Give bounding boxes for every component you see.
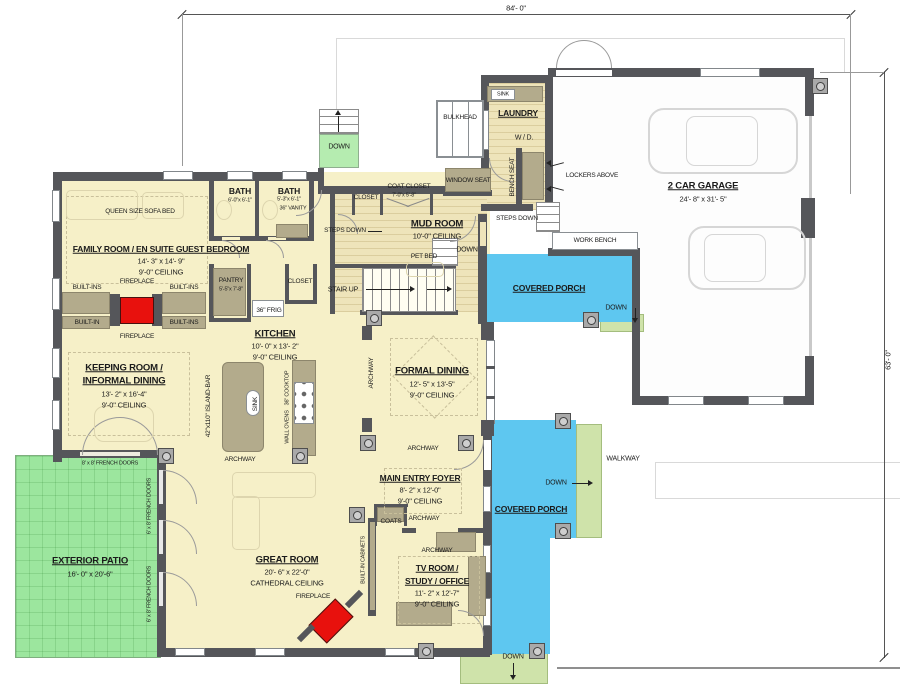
label-tv-ceiling: 9'-0" CEILING xyxy=(415,600,459,608)
window xyxy=(163,171,193,180)
label-keeping1: KEEPING ROOM / xyxy=(85,363,162,373)
porch-post xyxy=(458,435,474,451)
wall xyxy=(255,178,259,240)
label-wd: W / D. xyxy=(515,135,533,142)
label-bath1-size: 6'-0"x 6'-1" xyxy=(228,198,252,204)
archway-column xyxy=(362,326,372,340)
cooktop xyxy=(294,382,314,424)
label-pantry: PANTRY xyxy=(219,278,244,285)
label-kitchen: KITCHEN xyxy=(255,329,296,339)
label-vanity: 36" VANITY xyxy=(279,206,306,212)
label-foyer: MAIN ENTRY FOYER xyxy=(380,474,461,483)
archway-post xyxy=(292,448,308,464)
stair-down-arrow xyxy=(427,289,447,290)
label-fireplace-bottom: FIREPLACE xyxy=(120,334,154,341)
table-outline xyxy=(94,406,154,442)
label-bath1: BATH xyxy=(229,187,251,196)
window xyxy=(282,171,307,180)
stair-arrow-head xyxy=(335,110,341,115)
window-mullion xyxy=(486,396,495,399)
car-cabin xyxy=(686,116,758,166)
window xyxy=(385,648,415,656)
porch-post xyxy=(555,413,571,429)
label-closet-mud: CLOSET xyxy=(354,195,379,202)
label-down-porch-side: DOWN xyxy=(605,305,626,312)
wall xyxy=(209,318,251,322)
dimension-width: 84'- 0" xyxy=(506,4,526,12)
label-covered-porch-front: COVERED PORCH xyxy=(495,505,568,514)
label-keeping-ceiling: 9'-0" CEILING xyxy=(102,401,146,409)
built-ins-cabinet xyxy=(162,292,206,314)
label-window-seat: WINDOW SEAT xyxy=(446,178,491,185)
driveway-line xyxy=(655,462,656,498)
label-built-ins: BUILT-INS xyxy=(170,320,199,327)
window xyxy=(175,648,205,656)
window xyxy=(483,486,491,512)
label-kitchen-ceiling: 9'-0" CEILING xyxy=(253,353,297,361)
lockers-arrow-head xyxy=(546,186,551,192)
garage-rear-door-arc xyxy=(584,40,612,68)
label-tv-size: 11'- 2" x 12'-7" xyxy=(415,589,459,597)
label-work-bench: WORK BENCH xyxy=(574,238,617,245)
label-walkway: WALKWAY xyxy=(606,456,639,463)
basement-stair-landing xyxy=(319,134,359,168)
label-kitchen-size: 10'- 0" x 13'- 2" xyxy=(252,342,299,350)
label-keeping-size: 13'- 2" x 16'-4" xyxy=(101,390,146,398)
garage-door xyxy=(809,238,812,356)
wall xyxy=(285,300,317,304)
porch-post xyxy=(418,643,434,659)
label-great-ceiling: CATHEDRAL CEILING xyxy=(250,579,323,587)
label-tv1: TV ROOM / xyxy=(416,564,459,573)
label-foyer-ceiling: 9'-0" CEILING xyxy=(398,497,442,505)
lockers xyxy=(522,152,544,200)
archway-post xyxy=(349,507,365,523)
label-tv2: STUDY / OFFICE xyxy=(405,577,469,586)
sectional-outline xyxy=(232,472,316,498)
covered-porch-front xyxy=(490,536,550,654)
porch-post xyxy=(360,435,376,451)
label-bench-seat: BENCH SEAT xyxy=(510,157,517,196)
pet-bed-outline xyxy=(406,262,444,277)
label-archway-tv: ARCHWAY xyxy=(421,548,452,555)
label-family-size: 14'- 3" x 14'- 9" xyxy=(138,257,185,265)
wall xyxy=(481,204,533,211)
stair-arrow xyxy=(338,116,339,132)
wall xyxy=(481,420,494,436)
car-cabin xyxy=(704,234,766,282)
label-foyer-size: 8'- 2" x 12'-0" xyxy=(399,486,440,494)
bulkhead-mullion xyxy=(452,100,453,158)
label-down-basement: DOWN xyxy=(328,144,349,151)
label-built-ins: BUILT-INS xyxy=(73,285,102,292)
label-formal-ceiling: 9'-0" CEILING xyxy=(410,391,454,399)
sofa-outline xyxy=(66,190,138,220)
dimension-ext xyxy=(820,72,884,73)
label-built-in: BUILT-IN xyxy=(75,320,100,327)
wall xyxy=(430,188,433,215)
down-arrow-head xyxy=(510,675,516,680)
sectional-outline xyxy=(232,496,260,550)
stair-up-arrow xyxy=(366,289,410,290)
driveway-line xyxy=(557,667,900,669)
label-family-ceiling: 9'-0" CEILING xyxy=(139,268,183,276)
down-arrow xyxy=(635,308,636,318)
window xyxy=(748,396,784,405)
window xyxy=(52,190,60,222)
bulkhead xyxy=(436,100,484,158)
wall xyxy=(209,178,214,240)
porch-post xyxy=(583,312,599,328)
vanity xyxy=(276,224,308,238)
wall xyxy=(632,396,814,405)
fireplace-jamb xyxy=(110,294,120,326)
dimension-ext xyxy=(182,14,183,166)
label-down-bottom: DOWN xyxy=(502,654,523,661)
driveway-line xyxy=(655,462,900,463)
wall xyxy=(313,264,317,304)
wall xyxy=(318,168,324,190)
door-gap xyxy=(480,222,486,246)
steps-down-leader xyxy=(368,231,382,232)
porch-post xyxy=(555,523,571,539)
label-steps-down-hall: STEPS DOWN xyxy=(324,228,366,235)
label-island-sink: SINK xyxy=(253,397,260,411)
label-formal-dining: FORMAL DINING xyxy=(395,366,469,376)
label-island: 42"x110" ISLAND-BAR xyxy=(206,375,213,437)
window-mullion xyxy=(486,366,495,369)
label-pantry-size: 5'-5"x 7'-8" xyxy=(219,287,243,293)
label-archway-kitchen: ARCHWAY xyxy=(224,457,255,464)
label-stair-up: STAIR UP xyxy=(328,287,358,294)
label-french-8x8: 8' x 8' FRENCH DOORS xyxy=(82,461,138,467)
garage-door xyxy=(809,116,812,198)
label-family-room: FAMILY ROOM / EN SUITE GUEST BEDROOM xyxy=(73,245,250,254)
porch-post xyxy=(812,78,828,94)
label-down-stairs: DOWN xyxy=(456,247,477,254)
label-steps-down-laundry: STEPS DOWN xyxy=(496,216,538,223)
label-garage-size: 24'- 8" x 31'- 5" xyxy=(680,195,727,203)
driveway-line xyxy=(336,38,337,118)
porch-post xyxy=(366,310,382,326)
label-down-porch-front: DOWN xyxy=(545,480,566,487)
window xyxy=(227,171,253,180)
label-builtin-cabinets: BUILT-IN CABINETS xyxy=(361,536,367,584)
label-mud-room: MUD ROOM xyxy=(411,219,463,229)
label-laundry-sink: SINK xyxy=(497,92,509,98)
label-built-ins: BUILT-INS xyxy=(170,285,199,292)
label-fireplace-top: FIREPLACE xyxy=(120,279,154,286)
dining-window-band xyxy=(486,340,495,424)
window xyxy=(52,278,60,310)
wall xyxy=(247,264,251,322)
builtin-cab-strip xyxy=(370,522,375,610)
driveway-line xyxy=(655,498,900,499)
archway-post xyxy=(158,448,174,464)
bulkhead-mullion xyxy=(468,100,469,158)
label-patio-size: 16'- 0" x 20'-6" xyxy=(67,570,112,578)
stair-up-arrow-head xyxy=(410,286,415,292)
label-bath2: BATH xyxy=(278,187,300,196)
label-cooktop: 36" COOKTOP xyxy=(285,371,291,406)
label-garage: 2 CAR GARAGE xyxy=(668,181,738,191)
dimension-height: 63'- 0" xyxy=(884,350,892,370)
label-archway-dining-west: ARCHWAY xyxy=(369,357,376,388)
label-pet-bed: PET BED xyxy=(411,254,437,261)
window xyxy=(700,68,760,77)
label-fireplace-great: FIREPLACE xyxy=(296,594,330,601)
fireplace-box xyxy=(120,297,154,324)
label-lockers-above: LOCKERS ABOVE xyxy=(566,173,618,180)
wall xyxy=(805,356,814,405)
label-great-room: GREAT ROOM xyxy=(256,555,319,565)
label-mud-ceiling: 10'-0" CEILING xyxy=(413,232,461,240)
wall xyxy=(157,648,490,657)
label-coat-closet-size: 7'-0"x 5'-8" xyxy=(392,193,416,199)
label-frig: 36" FRIG xyxy=(256,308,281,315)
down-arrow xyxy=(513,663,514,675)
stair-down-arrow-head xyxy=(447,286,452,292)
label-covered-porch-side: COVERED PORCH xyxy=(513,284,586,293)
label-wall-ovens: WALL OVENS xyxy=(285,410,291,443)
dimension-line-top xyxy=(182,14,851,15)
driveway-line xyxy=(336,38,845,39)
garage-rear-door-arc xyxy=(556,40,584,68)
porch-post xyxy=(529,643,545,659)
built-ins-cabinet xyxy=(62,292,110,314)
label-formal-size: 12'- 5" x 13'-5" xyxy=(409,380,454,388)
window xyxy=(52,348,60,378)
label-french-6x8: 6' x 8' FRENCH DOORS xyxy=(147,478,153,534)
label-bulkhead: BULKHEAD xyxy=(443,115,476,122)
driveway-line xyxy=(844,38,845,72)
garage-rear-door-gap xyxy=(556,70,612,76)
floor-plan: 84'- 0" 63'- 0" DOWN BULKHEAD SINK LAUND… xyxy=(0,0,900,695)
archway-column xyxy=(362,418,372,432)
label-coat-closet: COAT CLOSET xyxy=(387,184,430,191)
dimension-ext xyxy=(850,14,851,194)
down-arrow-head xyxy=(632,318,638,323)
label-closet-kitchen: CLOSET xyxy=(288,279,313,286)
toilet-outline xyxy=(262,200,278,220)
window xyxy=(52,400,60,430)
wall xyxy=(402,528,416,533)
label-great-size: 20'- 6" x 22'-0" xyxy=(264,568,309,576)
label-coats: COATS xyxy=(381,519,402,526)
label-archway-dining-south: ARCHWAY xyxy=(407,446,438,453)
laundry-steps xyxy=(536,202,560,232)
down-arrow xyxy=(572,483,588,484)
window xyxy=(668,396,704,405)
window xyxy=(255,648,285,656)
wall xyxy=(352,188,355,215)
lockers-arrow-head xyxy=(546,160,551,166)
wall xyxy=(380,188,383,215)
label-laundry: LAUNDRY xyxy=(498,109,538,118)
label-archway-foyer: ARCHWAY xyxy=(408,516,439,523)
wall xyxy=(481,322,494,340)
label-french-6x8: 6' x 8' FRENCH DOORS xyxy=(147,566,153,622)
label-queen-sofa: QUEEN SIZE SOFA BED xyxy=(105,209,175,216)
entry-door-gap xyxy=(484,440,491,470)
down-arrow-head xyxy=(588,480,593,486)
label-keeping2: INFORMAL DINING xyxy=(83,376,166,386)
label-bath2-size: 5'-3"x 6'-1" xyxy=(277,197,301,203)
wall xyxy=(481,75,552,83)
wall xyxy=(632,254,640,400)
label-patio: EXTERIOR PATIO xyxy=(52,556,128,566)
